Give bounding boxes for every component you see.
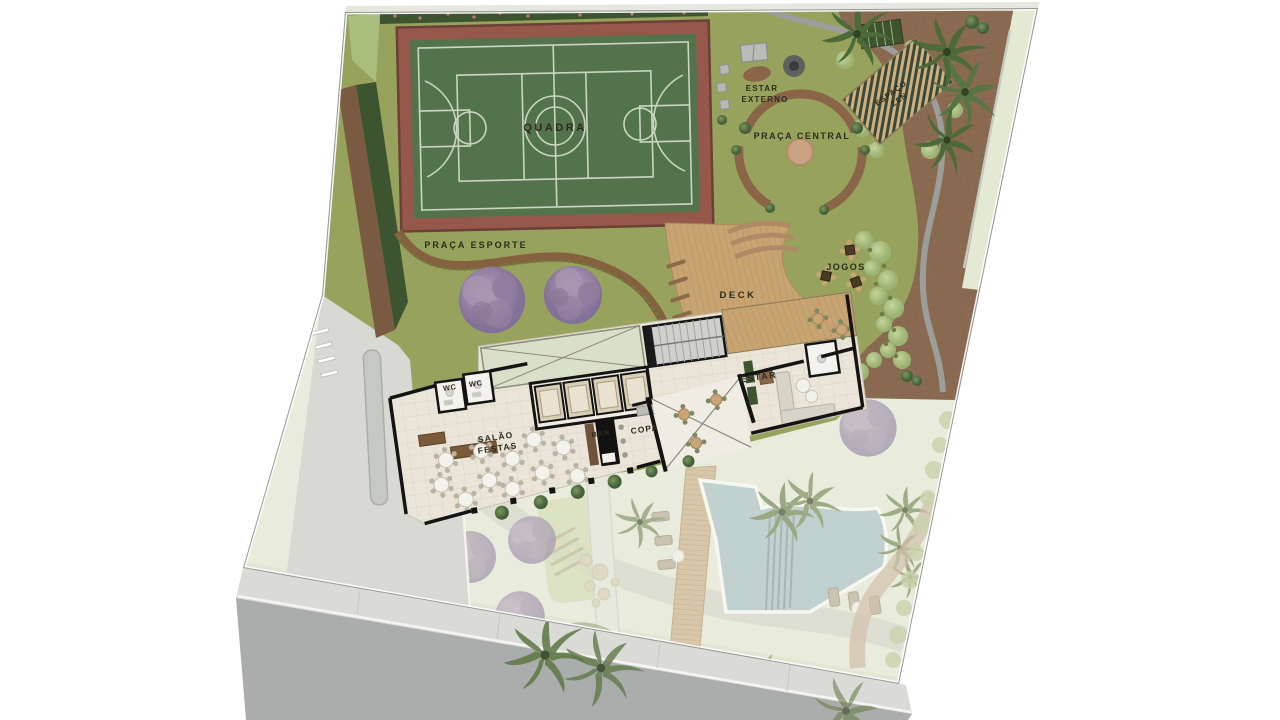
label-estar-externo-2: EXTERNO bbox=[741, 95, 788, 104]
label-deck: DECK bbox=[720, 290, 757, 301]
label-wc-right: WC bbox=[468, 378, 483, 389]
central-plaza-circle bbox=[787, 139, 813, 165]
label-praca-central: PRAÇA CENTRAL bbox=[754, 131, 851, 141]
site-plan-page: QUADRA ESTAR EXTERNO PRAÇA CENTRAL ESPAÇ… bbox=[0, 0, 1280, 720]
purple-tree bbox=[459, 267, 526, 334]
site-plan-illustration: QUADRA ESTAR EXTERNO PRAÇA CENTRAL ESPAÇ… bbox=[0, 0, 1280, 720]
label-estar-externo-1: ESTAR bbox=[746, 84, 779, 93]
label-quadra: QUADRA bbox=[523, 122, 586, 134]
label-jogos: JOGOS bbox=[826, 262, 866, 272]
label-wc-left: WC bbox=[442, 382, 457, 393]
purple-tree-faded bbox=[508, 516, 556, 564]
label-praca-esporte: PRAÇA ESPORTE bbox=[424, 240, 527, 250]
